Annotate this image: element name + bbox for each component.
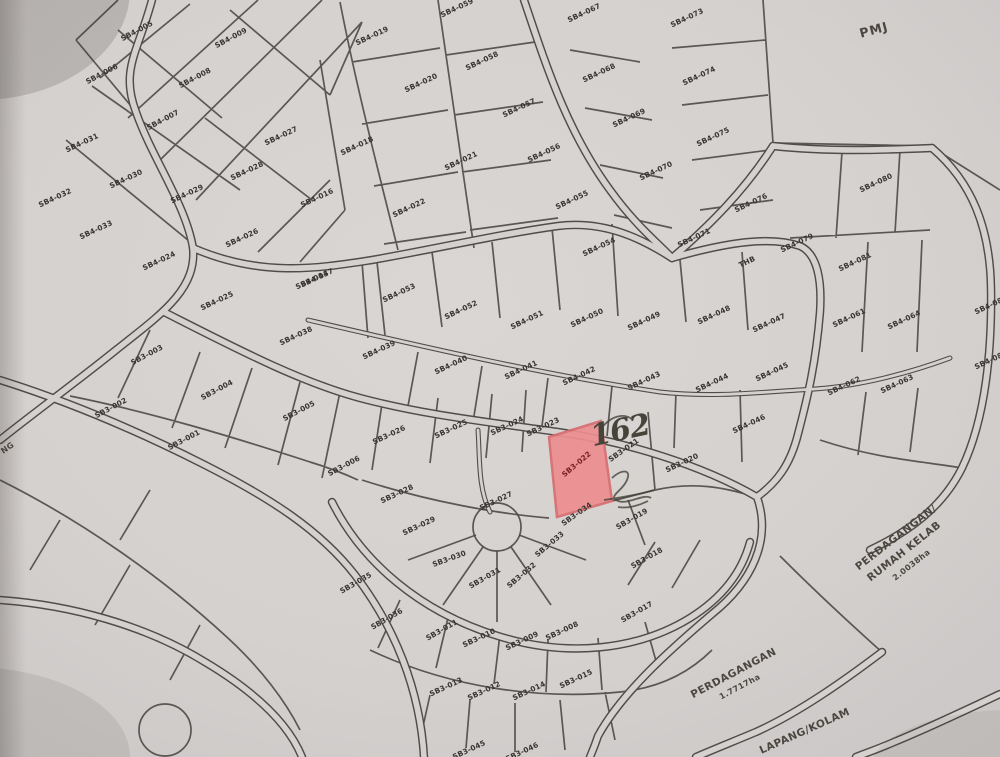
scanned-survey-map: SB4-005SB4-009SB4-006SB4-008SB4-007SB4-0… [0,0,1000,757]
survey-map-image: SB4-005SB4-009SB4-006SB4-008SB4-007SB4-0… [0,0,1000,757]
